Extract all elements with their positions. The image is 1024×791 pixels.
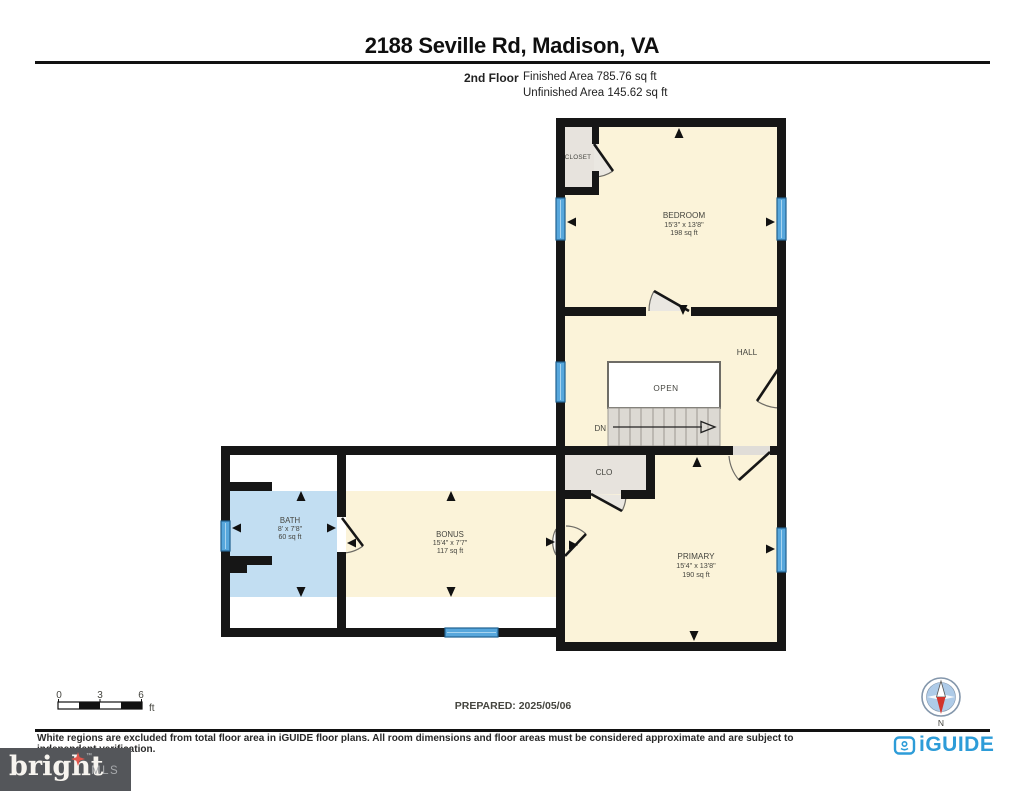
label-closet: CLOSET	[565, 154, 591, 161]
primary-door-gap	[733, 446, 770, 455]
compass-icon: N	[922, 678, 960, 728]
floor-plan-drawing: CLOSET BEDROOM 15'3" x 13'8" 198 sq ft H…	[0, 0, 1024, 791]
label-primary-dims: 15'4" x 13'8"	[676, 561, 716, 570]
iguide-logo: iGUIDE	[893, 733, 994, 757]
label-bath-area: 60 sq ft	[279, 534, 302, 541]
label-clo: CLO	[596, 468, 613, 477]
scale-unit: ft	[149, 703, 155, 714]
label-open: OPEN	[653, 384, 678, 393]
bright-trademark: ™	[86, 753, 92, 759]
disclaimer-text: White regions are excluded from total fl…	[37, 733, 807, 755]
stairwell	[608, 362, 720, 446]
label-bath-dims: 8' x 7'8"	[278, 526, 303, 533]
label-dn: DN	[594, 424, 606, 433]
iguide-wordmark: iGUIDE	[919, 734, 994, 756]
label-bath: BATH	[280, 516, 300, 525]
mls-wordmark: MLS	[91, 765, 119, 777]
scale-bar: 0 3 6 ft	[56, 690, 155, 714]
scale-0: 0	[56, 690, 62, 701]
room-bath	[230, 491, 337, 597]
label-primary: PRIMARY	[677, 552, 715, 561]
bright-mls-logo: bright ™ MLS	[0, 748, 131, 791]
label-hall: HALL	[737, 348, 758, 357]
label-primary-area: 190 sq ft	[682, 570, 710, 579]
prepared-date: PREPARED: 2025/05/06	[455, 700, 572, 712]
floor-plan-page: 2188 Seville Rd, Madison, VA 2nd Floor F…	[0, 0, 1024, 791]
label-bonus-dims: 15'4" x 7'7"	[433, 540, 468, 547]
bright-star-icon	[71, 752, 85, 766]
compass-north-label: N	[938, 718, 944, 728]
label-bedroom-area: 198 sq ft	[670, 228, 698, 237]
footer-divider	[35, 729, 990, 732]
label-bonus: BONUS	[436, 530, 464, 539]
iguide-logo-icon	[893, 734, 916, 756]
label-bonus-area: 117 sq ft	[437, 548, 463, 555]
label-bedroom: BEDROOM	[663, 211, 705, 220]
